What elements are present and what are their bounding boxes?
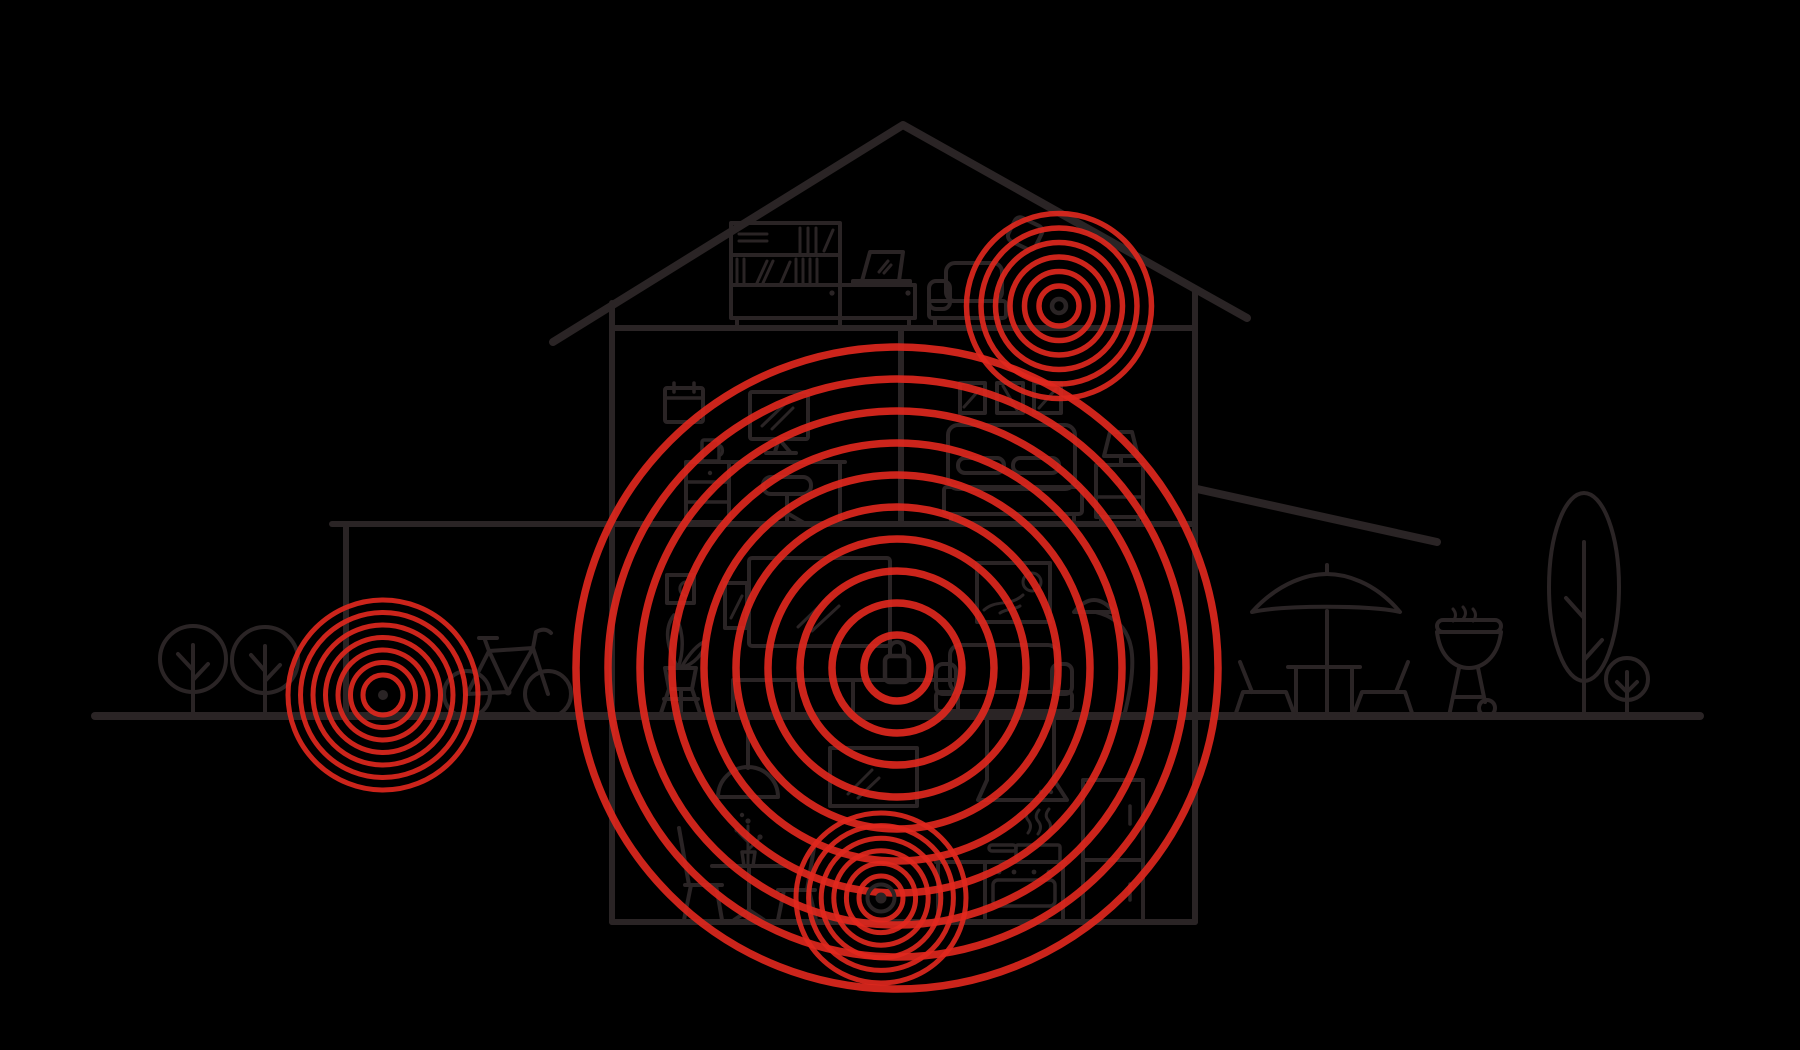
small-tree (1606, 658, 1648, 716)
house-structure (95, 125, 1700, 922)
illustration-stage (0, 0, 1800, 1050)
tall-tree (1549, 493, 1619, 716)
laptop (853, 252, 910, 285)
basement-sensor-signal (796, 813, 966, 983)
signal-ring (1039, 286, 1079, 326)
yard-device-signal (288, 600, 478, 790)
main-hub-lock-signal (576, 347, 1218, 989)
signal-ring (864, 635, 930, 701)
signal-ring (768, 539, 1026, 797)
device-center-icon (876, 893, 887, 904)
sideboard-cabinet (731, 285, 915, 327)
patio-chair-left (1235, 662, 1295, 716)
device-center-icon (378, 690, 388, 700)
patio-table (1288, 667, 1360, 716)
signal-ring (996, 243, 1123, 370)
device-center-icon (1052, 299, 1066, 313)
patio (1235, 493, 1648, 716)
plant-stand (660, 689, 701, 716)
round-tree-1 (160, 626, 226, 716)
bookshelf (731, 223, 840, 285)
patio-chair-right (1353, 662, 1413, 716)
smart-home-security-illustration (0, 0, 1800, 1050)
roof (553, 125, 1247, 342)
potted-plant (660, 615, 706, 716)
padlock-icon (885, 642, 909, 682)
attic-extender-signal (967, 214, 1152, 399)
kettle-grill (1437, 607, 1501, 716)
signal-ring (640, 411, 1154, 925)
signal-ring (736, 507, 1058, 829)
patio-awning (1197, 489, 1437, 542)
signal-ring (704, 475, 1090, 861)
